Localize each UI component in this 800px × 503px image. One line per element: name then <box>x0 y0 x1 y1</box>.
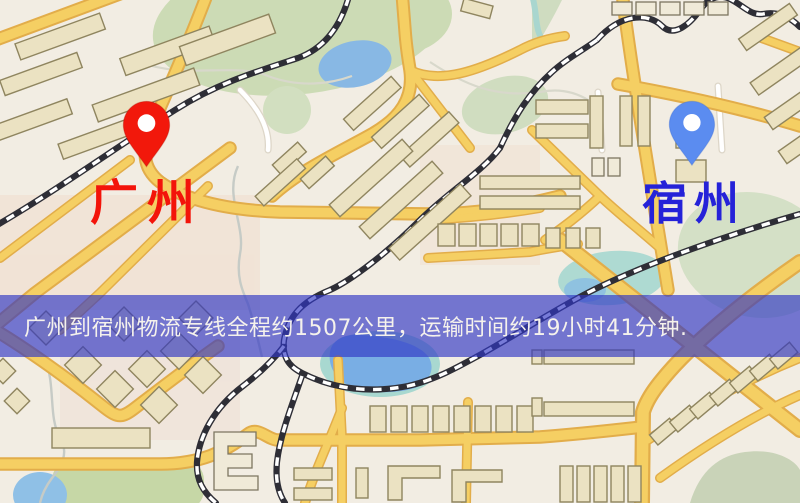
map-screenshot: 广州 宿州 广州到宿州物流专线全程约1507公里，运输时间约19小时41分钟. <box>0 0 800 503</box>
route-info-banner: 广州到宿州物流专线全程约1507公里，运输时间约19小时41分钟. <box>0 295 800 357</box>
route-info-text: 广州到宿州物流专线全程约1507公里，运输时间约19小时41分钟. <box>24 310 687 342</box>
map-canvas[interactable] <box>0 0 800 503</box>
